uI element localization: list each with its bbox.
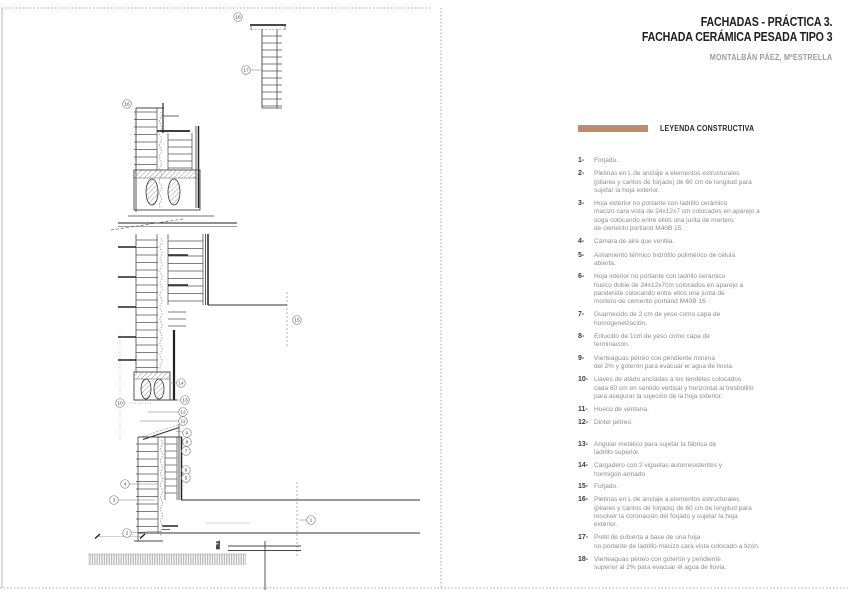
legend-item-text: Pletinas en L de anclaje a elementos est…	[594, 496, 752, 529]
legend-item-text: Vierteaguas pétreo con pendiente mínima …	[594, 355, 734, 372]
callout-4: 4	[121, 480, 158, 489]
legend-item-number: 8-	[578, 333, 594, 350]
callout-layer: 181716151413121110987654321	[110, 13, 316, 538]
legend-item-text: Hueco de ventana.	[594, 406, 649, 414]
legend-item: 13-Angular metálico para sujetar la fábr…	[578, 441, 842, 458]
legend-item: 10-Llaves de atado ancladas a los tendel…	[578, 376, 842, 401]
legend-item-number: 13-	[578, 441, 594, 458]
callout-16: 16	[123, 100, 132, 109]
legend-item-number: 6-	[578, 273, 594, 306]
callout-number: 9	[186, 431, 189, 437]
legend-item-text: Forjado.	[594, 483, 618, 491]
callout-18: 18	[234, 13, 243, 22]
legend-title: LEYENDA CONSTRUCTIVA	[660, 124, 754, 133]
legend-item-number: 2-	[578, 170, 594, 195]
callout-number: 13	[182, 398, 188, 404]
legend-item-text: Hoja interior no portante con ladrillo c…	[594, 273, 743, 306]
upper-wall-section	[111, 103, 237, 230]
legend-item-text: Cargadero con 2 viguetas autorresistente…	[594, 462, 722, 479]
insulation-wavy-line	[160, 440, 162, 536]
legend-item: 17-Pretil de cubierta a base de una hoja…	[578, 534, 842, 551]
legend-item-number: 11-	[578, 406, 594, 414]
callout-13: 13	[177, 396, 189, 405]
callout-9: 9	[176, 429, 191, 438]
legend-item: 18-Vierteaguas pétreo con goterón y pend…	[578, 556, 842, 573]
callout-number: 15	[294, 318, 300, 324]
legend-item: 4-Cámara de aire que ventila.	[578, 238, 842, 246]
callout-17: 17	[242, 66, 262, 75]
callout-number: 10	[117, 401, 123, 407]
legend-item-number: 5-	[578, 252, 594, 269]
callout-number: 7	[185, 449, 188, 455]
vigueta	[141, 379, 151, 399]
legend-item-number: 10-	[578, 376, 594, 401]
legend-item: 8-Enlucido de 1cm de yeso como capa de t…	[578, 333, 842, 350]
callout-number: 16	[124, 102, 130, 108]
legend-item-number: 18-	[578, 556, 594, 573]
sheet-author: MONTALBÁN PÁEZ, MªESTRELLA	[634, 52, 832, 62]
callout-5: 5	[182, 474, 191, 483]
legend-item-number: 14-	[578, 462, 594, 479]
legend-accent-bar	[578, 125, 648, 132]
dim-tick	[95, 534, 100, 539]
legend-item-text: Hoja exterior no portante con ladrillo c…	[594, 200, 760, 233]
legend-item-text: Vierteaguas pétreo con goterón y pendien…	[594, 556, 726, 573]
middle-wall-section	[120, 234, 287, 440]
legend-item: 14-Cargadero con 2 viguetas autorresiste…	[578, 462, 842, 479]
legend-item: 15-Forjado.	[578, 483, 842, 491]
legend-item-text: Guarnecido de 2 cm de yeso como capa de …	[594, 311, 720, 328]
callout-3: 3	[110, 496, 155, 505]
legend-item-number: 12-	[578, 419, 594, 427]
legend-item: 11-Hueco de ventana.	[578, 406, 842, 414]
callout-1: 1	[299, 516, 315, 525]
title-block: FACHADAS - PRÁCTICA 3. FACHADA CERÁMICA …	[600, 14, 832, 62]
legend-item-number: 16-	[578, 496, 594, 529]
legend-header: LEYENDA CONSTRUCTIVA	[578, 124, 842, 133]
legend-item-text: Angular metálico para sujetar la fábrica…	[594, 441, 716, 458]
legend-item: 12-Dintel pétreo.	[578, 419, 842, 427]
vierteaguas-line	[143, 428, 179, 440]
callout-number: 17	[243, 68, 249, 74]
legend-list: 1-Forjado.2-Pletinas en L de anclaje a e…	[578, 157, 842, 573]
callout-number: 2	[126, 531, 129, 537]
callout-number: 1	[310, 518, 313, 524]
callout-number: 3	[113, 498, 116, 504]
sheet: { "title_block": { "line1": "FACHADAS - …	[0, 0, 848, 600]
sheet-title-line1: FACHADAS - PRÁCTICA 3.	[641, 14, 832, 29]
legend-item-number: 1-	[578, 157, 594, 165]
vigueta	[146, 179, 158, 205]
generated-detail-lines	[118, 36, 282, 536]
callout-number: 6	[185, 468, 188, 474]
callout-8: 8	[183, 438, 192, 447]
legend-item-text: Aislamiento térmico hidrófilo polimérico…	[594, 252, 735, 269]
legend-item: 5-Aislamiento térmico hidrófilo poliméri…	[578, 252, 842, 269]
legend-item-text: Enlucido de 1cm de yeso como capa de ter…	[594, 333, 710, 350]
legend-item-number: 15-	[578, 483, 594, 491]
callout-number: 18	[235, 15, 241, 21]
vigueta	[168, 179, 180, 205]
callout-number: 5	[185, 476, 188, 482]
legend-item-number: 3-	[578, 200, 594, 233]
parapet-detail	[250, 25, 286, 108]
callout-number: 4	[124, 482, 127, 488]
callout-number: 14	[178, 381, 184, 387]
callout-12: 12	[148, 408, 187, 417]
callout-number: 8	[186, 440, 189, 446]
sheet-title-line2: FACHADA CERÁMICA PESADA TIPO 3	[641, 29, 832, 44]
legend-item: 16-Pletinas en L de anclaje a elementos …	[578, 496, 842, 529]
callout-11: 11	[140, 417, 187, 426]
legend-item: 7-Guarnecido de 2 cm de yeso como capa d…	[578, 311, 842, 328]
vigueta	[154, 379, 164, 399]
legend-item-text: Llaves de atado ancladas a los tendeles …	[594, 376, 754, 401]
legend-item-text: Dintel pétreo.	[594, 419, 633, 427]
callout-number: 11	[181, 419, 186, 425]
callout-6: 6	[182, 466, 191, 475]
legend-item-number: 4-	[578, 238, 594, 246]
insulation-wavy-line	[159, 112, 161, 208]
lower-wall-section: 50.1	[88, 437, 420, 590]
legend-item-text: Forjado.	[594, 157, 618, 165]
legend-item: 3-Hoja exterior no portante con ladrillo…	[578, 200, 842, 233]
legend-item-number: 7-	[578, 311, 594, 328]
callout-number: 12	[180, 410, 186, 416]
legend-item: 1-Forjado.	[578, 157, 842, 165]
legend-item-text: Cámara de aire que ventila.	[594, 238, 674, 246]
legend-item-text: Pletinas en L de anclaje a elementos est…	[594, 170, 752, 195]
legend-item: 9-Vierteaguas pétreo con pendiente mínim…	[578, 355, 842, 372]
legend-item: 6-Hoja interior no portante con ladrillo…	[578, 273, 842, 306]
legend-item: 2-Pletinas en L de anclaje a elementos e…	[578, 170, 842, 195]
legend-item-number: 9-	[578, 355, 594, 372]
callout-7: 7	[182, 447, 191, 456]
ground-hatch	[88, 554, 246, 565]
legend-panel: LEYENDA CONSTRUCTIVA 1-Forjado.2-Pletina…	[578, 124, 842, 578]
legend-item-number: 17-	[578, 534, 594, 551]
callout-15: 15	[293, 316, 302, 325]
dim-tick	[140, 534, 145, 539]
insulation-wavy-line	[160, 238, 162, 370]
legend-item-text: Pretil de cubierta a base de una hoja no…	[594, 534, 760, 551]
dimension-label: 50.1	[216, 540, 221, 549]
